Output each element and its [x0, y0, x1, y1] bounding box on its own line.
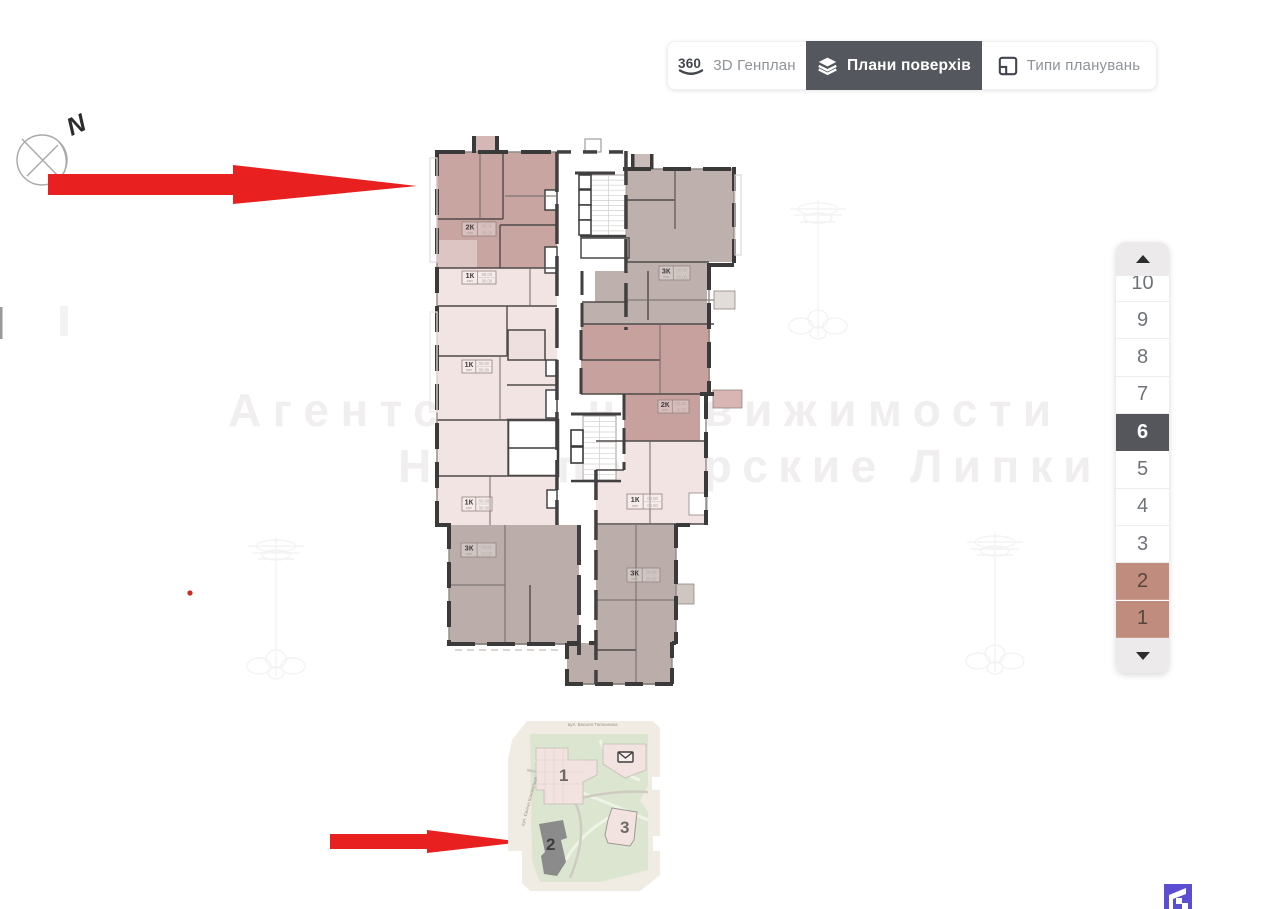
svg-text:00.00: 00.00	[675, 401, 686, 406]
svg-text:00.00: 00.00	[676, 274, 687, 279]
svg-text:N: N	[62, 108, 91, 141]
svg-text:кімн: кімн	[662, 408, 668, 412]
svg-text:00.00: 00.00	[481, 551, 492, 556]
svg-text:кімн: кімн	[467, 279, 473, 283]
svg-text:00.00: 00.00	[647, 503, 658, 508]
svg-text:00.00: 00.00	[646, 576, 657, 581]
svg-text:00.00: 00.00	[482, 272, 493, 277]
svg-text:00.00: 00.00	[647, 496, 658, 501]
svg-text:2: 2	[546, 835, 555, 854]
svg-text:вул. Василя Тютюнника: вул. Василя Тютюнника	[568, 722, 618, 727]
svg-text:кімн: кімн	[466, 368, 472, 372]
svg-text:00.00: 00.00	[481, 545, 492, 550]
svg-text:00.00: 00.00	[479, 361, 490, 366]
svg-text:1: 1	[559, 766, 568, 785]
svg-text:кімн: кімн	[632, 577, 638, 581]
svg-text:00.00: 00.00	[675, 407, 686, 412]
svg-text:00.00: 00.00	[676, 268, 687, 273]
svg-text:кімн: кімн	[632, 504, 638, 508]
svg-text:00.00: 00.00	[479, 367, 490, 372]
svg-text:00.00: 00.00	[482, 278, 493, 283]
svg-text:1К: 1К	[631, 495, 640, 504]
svg-text:00.00: 00.00	[482, 230, 493, 235]
svg-text:кімн: кімн	[467, 231, 473, 235]
svg-text:00.00: 00.00	[479, 499, 490, 504]
svg-text:кімн: кімн	[466, 552, 472, 556]
svg-text:кімн: кімн	[663, 275, 669, 279]
svg-text:00.00: 00.00	[646, 570, 657, 575]
svg-text:кімн: кімн	[466, 506, 472, 510]
svg-text:00.00: 00.00	[479, 505, 490, 510]
svg-text:3: 3	[620, 818, 629, 837]
svg-text:360: 360	[678, 56, 701, 71]
svg-text:00.00: 00.00	[482, 224, 493, 229]
